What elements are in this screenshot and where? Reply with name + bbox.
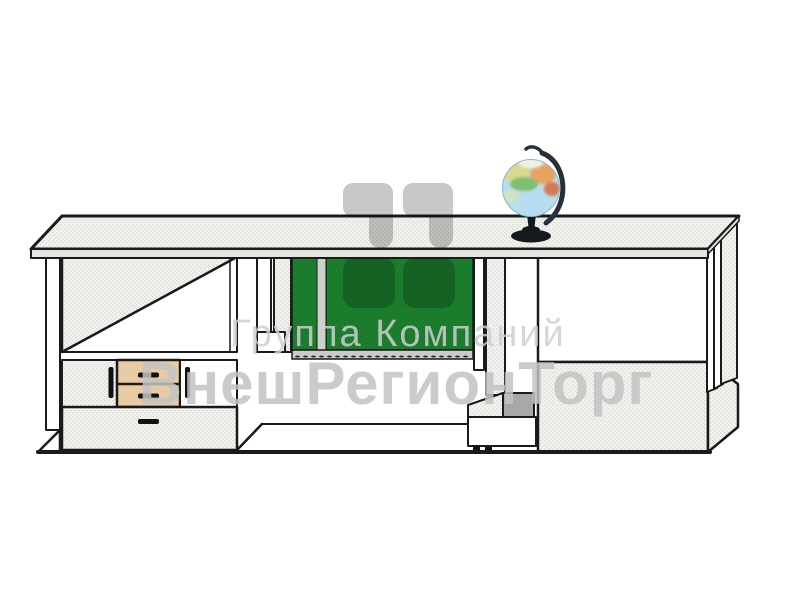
logo-quote-right-tail xyxy=(429,196,453,248)
step-front xyxy=(468,417,536,446)
left-door-handle xyxy=(109,367,114,398)
logo-quote-left-bottom xyxy=(343,258,395,308)
globe-stand-base xyxy=(511,230,551,243)
left-leg xyxy=(46,258,60,430)
desktop-front-edge xyxy=(31,249,708,258)
product-image-canvas: Группа Компаний ВнешРегионТорг xyxy=(0,0,800,600)
watermark-brand-line: ВнешРегионТорг xyxy=(139,350,654,417)
right-leg-outer xyxy=(721,220,737,384)
logo-quote-right-bottom xyxy=(403,258,455,308)
watermark-company-line: Группа Компаний xyxy=(230,313,566,355)
logo-quote-left-tail xyxy=(369,196,393,248)
bottom-drawer-handle xyxy=(138,419,159,424)
desk-illustration: Группа Компаний ВнешРегионТорг xyxy=(0,0,800,600)
